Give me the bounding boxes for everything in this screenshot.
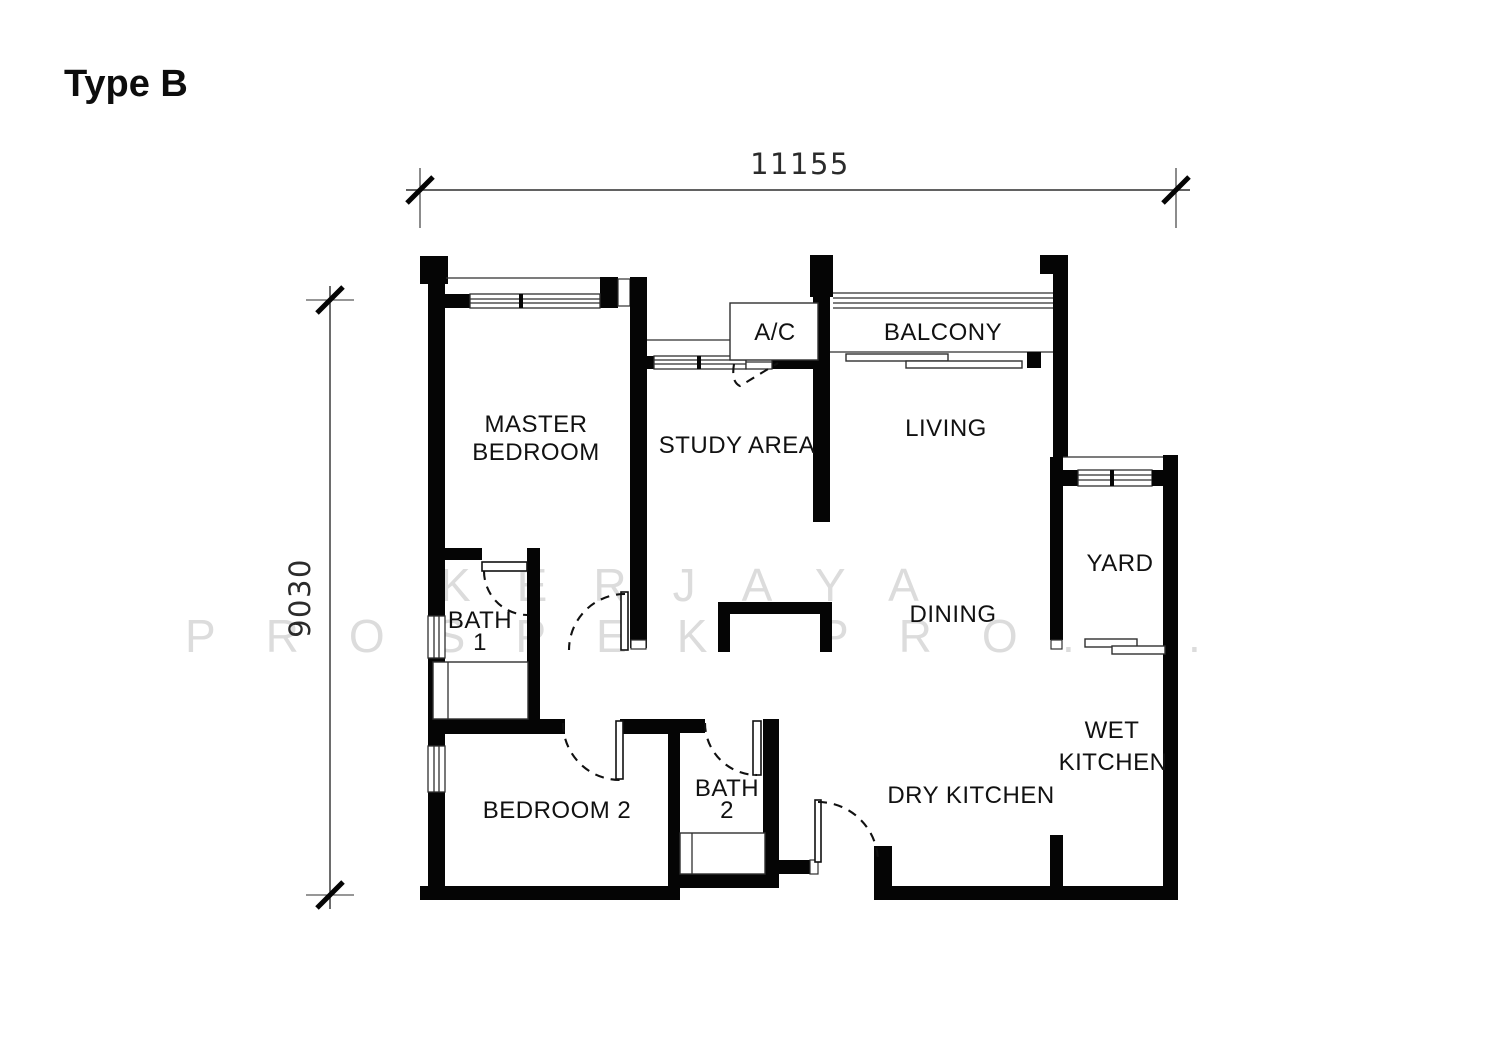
- dimension-width-label: 11155: [750, 147, 850, 181]
- wall-column-balcony-left: [810, 255, 833, 297]
- wall-wet-dry-divider: [1050, 835, 1063, 888]
- sliding-door-balcony: [830, 352, 1053, 368]
- wall-column-master-right: [600, 277, 618, 308]
- window-yard: [1063, 457, 1163, 486]
- sliding-door-yard: [1085, 639, 1165, 654]
- wall-column-top-right: [1040, 255, 1068, 274]
- room-label-bedroom-2: BEDROOM 2: [483, 797, 632, 824]
- room-label-dining: DINING: [910, 601, 997, 628]
- watermark: KERJAYA PROSPEK PRO . . .: [185, 559, 1201, 662]
- room-label-living: LIVING: [905, 415, 987, 442]
- dimension-horizontal: 11155: [406, 147, 1190, 228]
- room-label-bath1-line2: 1: [473, 629, 487, 656]
- room-label-study-area: STUDY AREA: [659, 432, 816, 459]
- wall-master-study-divider: [630, 277, 647, 648]
- room-label-wet-kitchen-line1: WET: [1085, 717, 1140, 744]
- dimension-height-label: 9030: [283, 558, 317, 638]
- floor-plan-svg: KERJAYA PROSPEK PRO . . . Type B 11155 9…: [0, 0, 1500, 1061]
- dimension-vertical: 9030: [283, 286, 354, 909]
- window-bedroom-2: [428, 746, 445, 792]
- watermark-dot: .: [1062, 610, 1075, 662]
- door-entrance: [815, 800, 878, 862]
- room-label-balcony: BALCONY: [884, 319, 1002, 346]
- plan-title: Type B: [64, 63, 188, 105]
- closet-bath-1: [433, 662, 528, 719]
- railing-balcony: [833, 293, 1053, 308]
- room-label-dry-kitchen: DRY KITCHEN: [887, 782, 1054, 809]
- room-label-ac: A/C: [754, 319, 796, 346]
- room-label-master-bedroom-line2: BEDROOM: [472, 439, 600, 466]
- room-label-master-bedroom-line1: MASTER: [484, 411, 587, 438]
- room-label-bath2-line2: 2: [720, 797, 734, 824]
- door-bath-2: [705, 721, 761, 775]
- watermark-dot: .: [1188, 610, 1201, 662]
- door-bedroom-2: [563, 721, 623, 780]
- room-label-yard: YARD: [1087, 550, 1154, 577]
- floor-plan-page: KERJAYA PROSPEK PRO . . . Type B 11155 9…: [0, 0, 1500, 1061]
- room-label-wet-kitchen-line2: KITCHEN: [1059, 749, 1168, 776]
- shower-tray-bath-2: [680, 833, 765, 874]
- window-master-bedroom: [470, 294, 600, 308]
- window-bath-1: [428, 616, 445, 658]
